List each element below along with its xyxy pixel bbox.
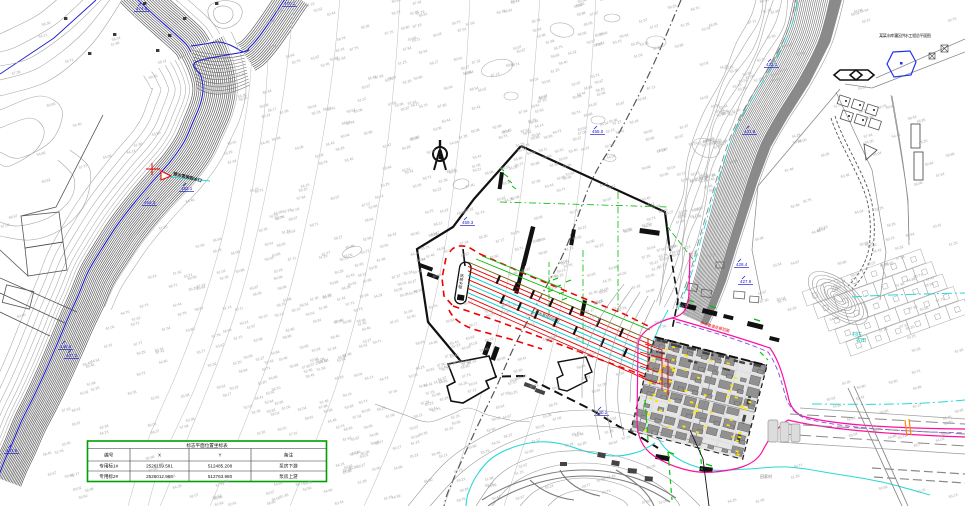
svg-text:某某水库灌区供水工程总平面图: 某某水库灌区供水工程总平面图	[879, 32, 931, 39]
svg-text:X: X	[158, 453, 161, 458]
svg-text:农田: 农田	[856, 337, 866, 344]
svg-text:Y: Y	[218, 453, 221, 458]
svg-text:459.3: 459.3	[462, 220, 474, 225]
svg-text:446.8: 446.8	[60, 344, 72, 349]
svg-text:专用标1#: 专用标1#	[99, 463, 118, 470]
svg-text:田家村: 田家村	[760, 473, 772, 479]
svg-text:427.9: 427.9	[740, 279, 752, 284]
svg-text:474.6: 474.6	[136, 6, 148, 11]
svg-text:431.8: 431.8	[744, 129, 756, 134]
svg-text:备注: 备注	[284, 452, 294, 459]
svg-text:470.1: 470.1	[284, 1, 296, 6]
svg-text:447.2: 447.2	[66, 353, 78, 358]
svg-text:453.1: 453.1	[181, 186, 193, 191]
svg-text:441.5: 441.5	[6, 448, 18, 453]
svg-text:村庄: 村庄	[852, 331, 862, 338]
svg-text:512763.980: 512763.980	[208, 474, 233, 479]
svg-text:编号: 编号	[104, 452, 114, 459]
svg-text:455.0: 455.0	[592, 129, 604, 134]
svg-text:432.1: 432.1	[766, 62, 778, 67]
svg-text:泵房下游: 泵房下游	[279, 463, 298, 470]
svg-text:专用标2#: 专用标2#	[99, 473, 118, 480]
svg-text:428.4: 428.4	[736, 262, 748, 267]
svg-text:512485.208: 512485.208	[208, 464, 233, 469]
svg-text:泵房上游: 泵房上游	[279, 473, 298, 480]
svg-text:452.3: 452.3	[144, 200, 156, 205]
svg-text:标志平面位置坐标表: 标志平面位置坐标表	[186, 442, 228, 449]
